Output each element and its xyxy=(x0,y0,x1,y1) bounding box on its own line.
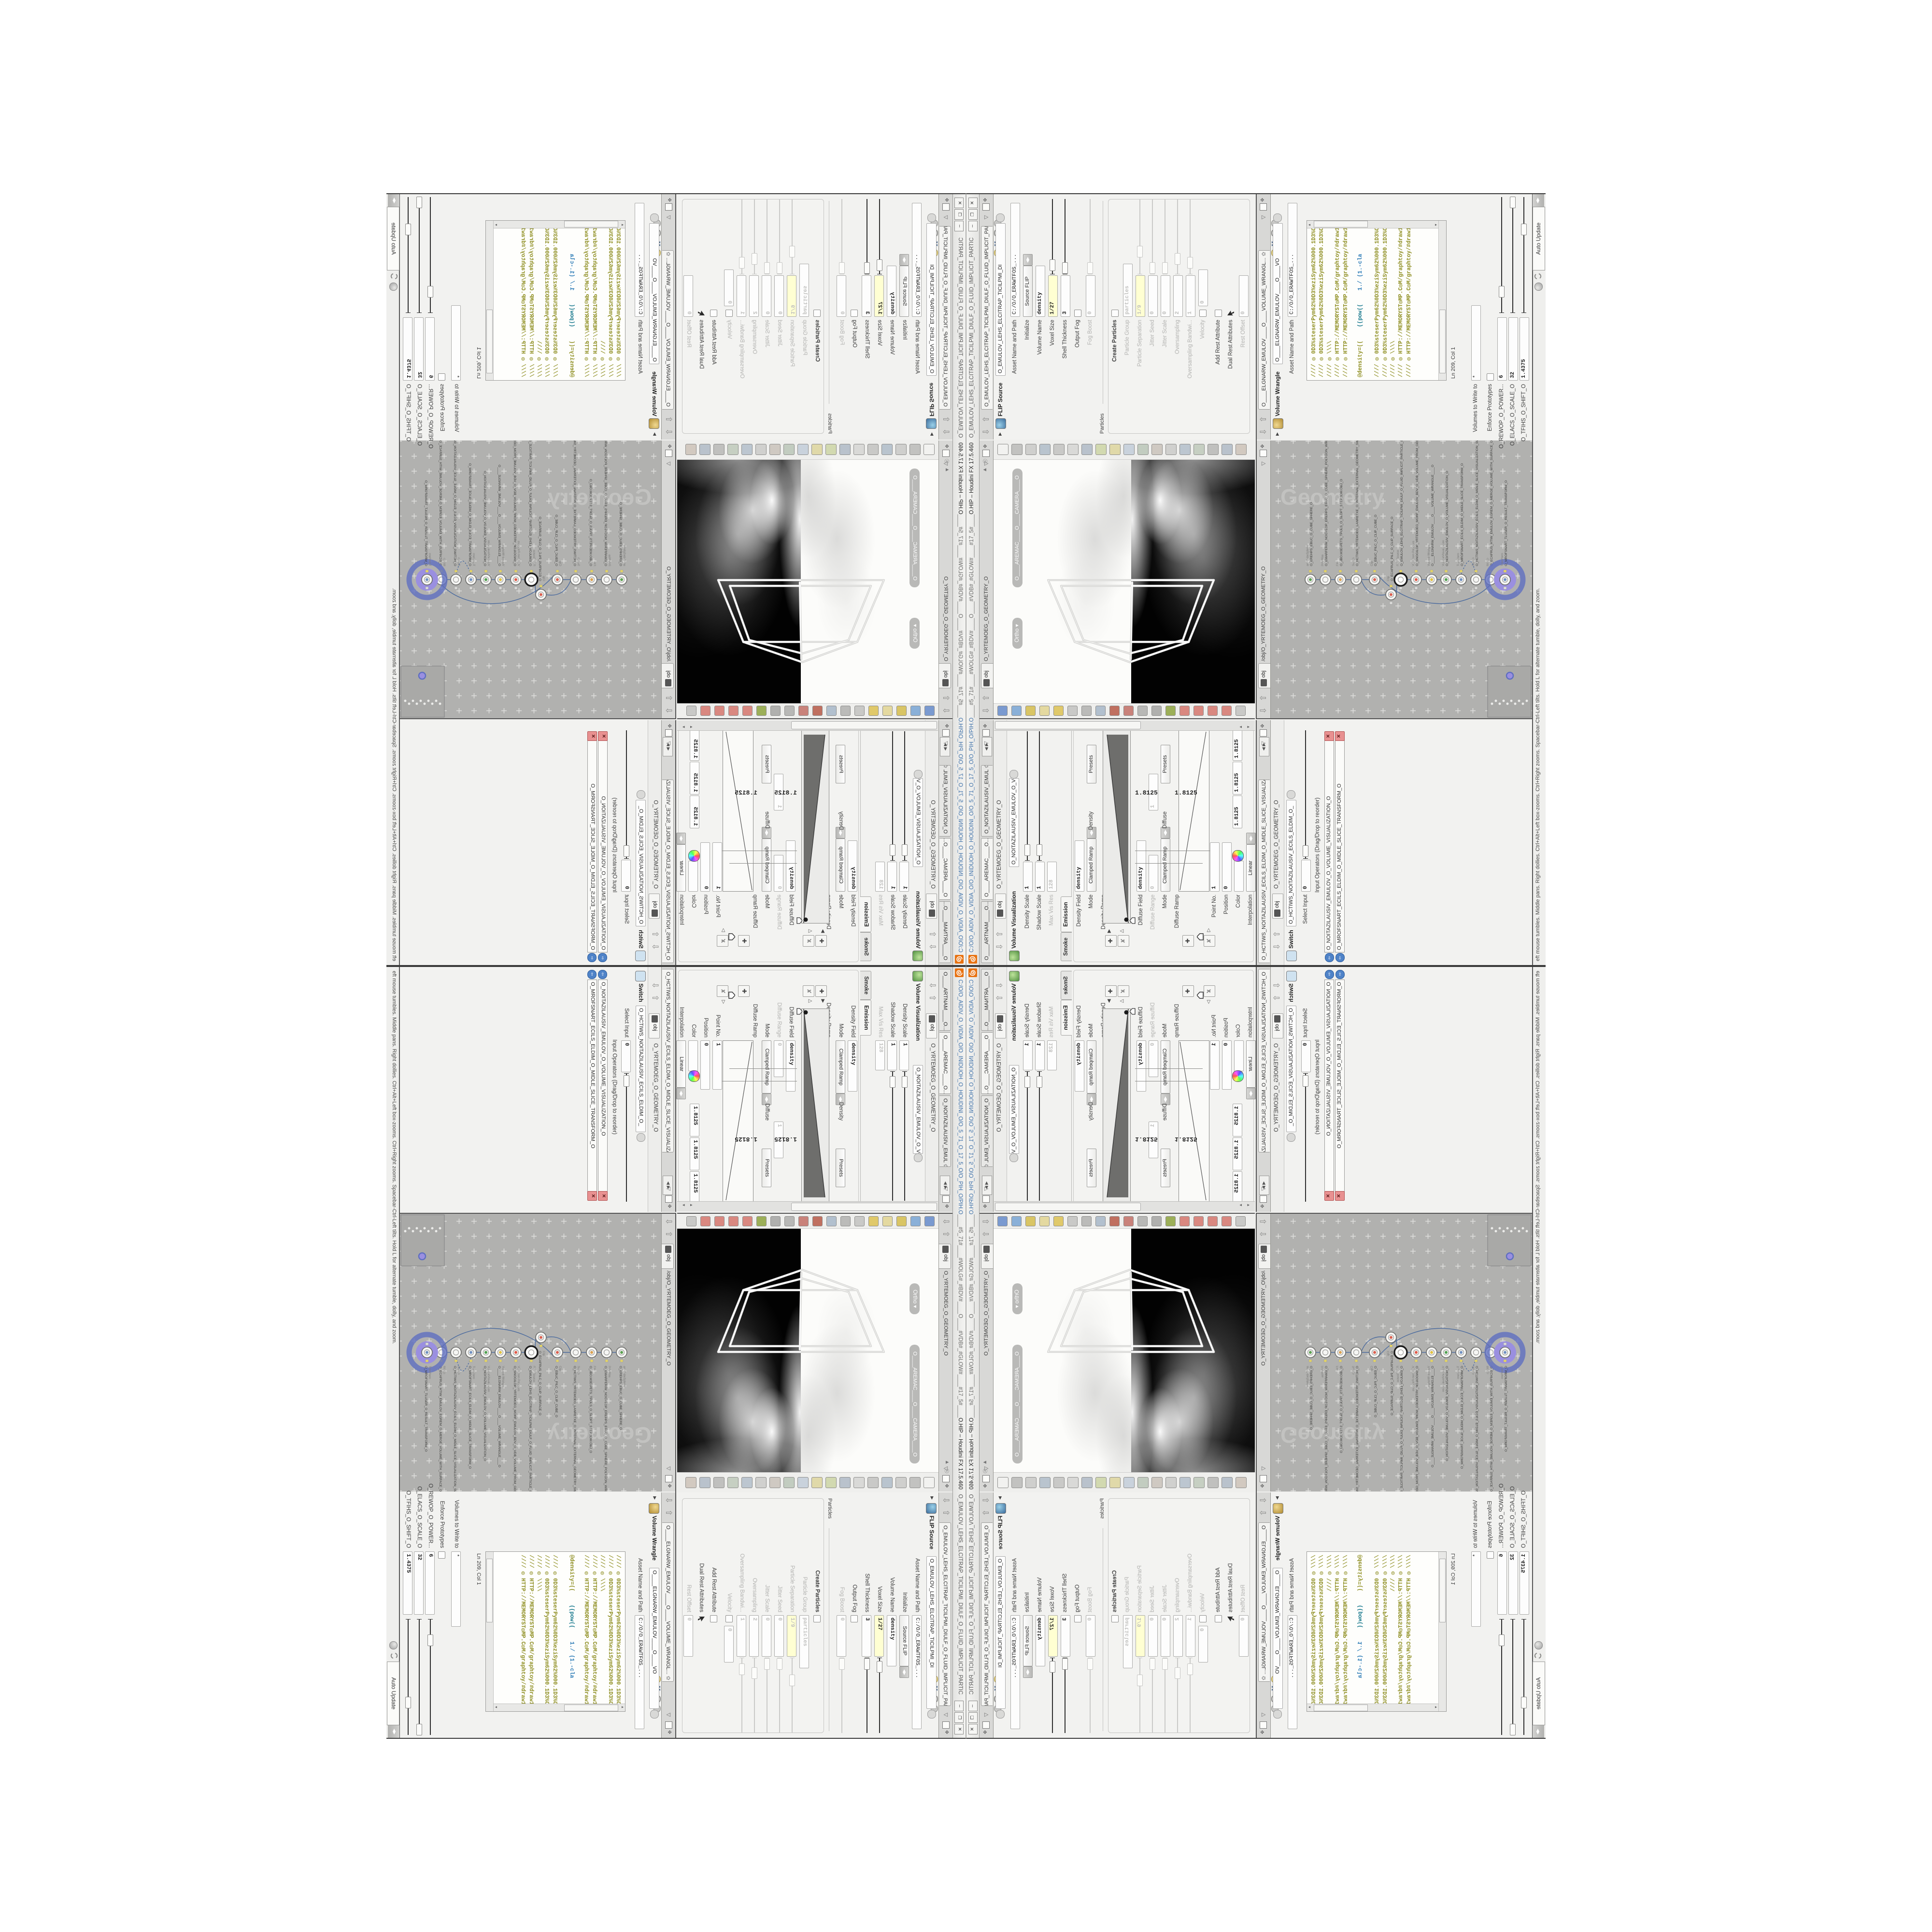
svg-text:Transform: Transform xyxy=(472,1366,475,1379)
svg-text:Switch: Switch xyxy=(1352,1366,1355,1375)
svg-text:an_CubeSphere: an_CubeSphere xyxy=(1307,1366,1309,1387)
svg-text:VolumeVisualization: VolumeVisualization xyxy=(1442,540,1445,566)
svg-text:Clip: Clip xyxy=(1387,576,1390,581)
svg-text:O_SNOGILOP_YRTEMOEG_MORF_EMULO: O_SNOGILOP_YRTEMOEG_MORF_EMULOV_BDV_O_VD… xyxy=(1416,440,1419,566)
svg-text:Merge: Merge xyxy=(442,1366,445,1375)
svg-text:Merge: Merge xyxy=(1487,557,1490,566)
svg-text:Transform: Transform xyxy=(1457,553,1460,566)
svg-text:VDB from Polygons: VDB from Polygons xyxy=(517,1366,520,1391)
svg-text:O_JBO.M3D.PETS_TPOLS_O_SLOPT_S: O_JBO.M3D.PETS_TPOLS_O_SLOPT_STEP.3DM.OB… xyxy=(589,479,592,566)
svg-text:O_EMARFERIW_NOGYLOP_EREHPS_EBU: O_EMARFERIW_NOGYLOP_EREHPS_EBUC_O_CUBE_S… xyxy=(604,1366,607,1492)
svg-text:PolyWire: PolyWire xyxy=(608,1366,611,1378)
svg-text:O_EMULOV_LEHS_ELCITRAP_TICILPM: O_EMULOV_LEHS_ELCITRAP_TICILPMI_DIULF_O_… xyxy=(1400,440,1404,566)
svg-text:O_JBO.M3D.PETS_TPOLS_O_SLOPT_S: O_JBO.M3D.PETS_TPOLS_O_SLOPT_STEP.3DM.OB… xyxy=(1340,1366,1343,1453)
svg-text:Volume Wrangle: Volume Wrangle xyxy=(501,1366,504,1388)
svg-text:Clip: Clip xyxy=(558,1366,561,1371)
svg-text:PolyWire: PolyWire xyxy=(1321,1366,1324,1378)
svg-text:Transform: Transform xyxy=(472,553,475,566)
svg-text:O_EBUC_PILC_O_CLIP_CUBE_O: O_EBUC_PILC_O_CLIP_CUBE_O xyxy=(554,1366,558,1418)
svg-text:PolyWire: PolyWire xyxy=(608,554,611,566)
svg-text:O_EMULOV_LEHS_ELCITRAP_TICILPM: O_EMULOV_LEHS_ELCITRAP_TICILPMI_DIULF_O_… xyxy=(528,440,532,566)
svg-text:O____ELGNARW_EMULOV____O____VO: O____ELGNARW_EMULOV____O____VOLUME_WRANG… xyxy=(497,465,501,566)
svg-text:VDB from Polygons: VDB from Polygons xyxy=(517,541,520,566)
svg-text:O_NOITAZILAUSIV_EMULOV_O_VOLUM: O_NOITAZILAUSIV_EMULOV_O_VOLUME_VISUALIZ… xyxy=(1446,1366,1449,1461)
svg-text:Switch: Switch xyxy=(577,557,580,566)
svg-text:O____ELGNARW_EMULOV____O____VO: O____ELGNARW_EMULOV____O____VOLUME_WRANG… xyxy=(1431,465,1435,566)
svg-text:Volume Wrangle: Volume Wrangle xyxy=(1428,1366,1431,1388)
svg-text:FLIP Source: FLIP Source xyxy=(1397,1366,1400,1382)
svg-text:O_EREHPS_EBUC_O_CUBE_SPHERE_O: O_EREHPS_EBUC_O_CUBE_SPHERE_O xyxy=(1310,1366,1313,1430)
svg-text:O_JBO.M3D.PETS_TPOLS_O_SLOPT_S: O_JBO.M3D.PETS_TPOLS_O_SLOPT_STEP.3DM.OB… xyxy=(589,1366,592,1453)
svg-text:Volume Wrangle: Volume Wrangle xyxy=(501,544,504,566)
svg-text:Switch: Switch xyxy=(457,557,460,566)
svg-text:O_EMULOV_LEHS_ELCITRAP_TICILPM: O_EMULOV_LEHS_ELCITRAP_TICILPMI_DIULF_O_… xyxy=(528,1366,532,1492)
svg-text:VolumeVisualization: VolumeVisualization xyxy=(487,1366,490,1392)
svg-text:Geometry: Geometry xyxy=(548,484,652,510)
svg-text:Clip: Clip xyxy=(542,576,545,581)
svg-text:O_SNOGILOP_YRTEMOEG_MORF_EMULO: O_SNOGILOP_YRTEMOEG_MORF_EMULOV_BDV_O_VD… xyxy=(513,1366,516,1492)
svg-text:FLIP Source: FLIP Source xyxy=(1397,550,1400,566)
svg-text:O_HCTIWS_YRTEMOEG_LANRETXE_O_I: O_HCTIWS_YRTEMOEG_LANRETXE_O_INTERNAL_EX… xyxy=(573,1366,576,1492)
svg-text:O_JBO.M3D.PETS_TPOLS_O_SLOPT_S: O_JBO.M3D.PETS_TPOLS_O_SLOPT_STEP.3DM.OB… xyxy=(1340,479,1343,566)
svg-text:Transform: Transform xyxy=(1501,1366,1504,1379)
svg-text:O_EMARFERIW_NOGYLOP_EREHPS_EBU: O_EMARFERIW_NOGYLOP_EREHPS_EBUC_O_CUBE_S… xyxy=(604,440,607,566)
svg-text:Volume Wrangle: Volume Wrangle xyxy=(1428,544,1431,566)
svg-text:O_MROFSNART_ECILS_ELDIM_O_MIDL: O_MROFSNART_ECILS_ELDIM_O_MIDLE_SLICE_TR… xyxy=(1461,463,1464,566)
svg-text:O_EREHPS_EBUC_O_CUBE_SPHERE_O: O_EREHPS_EBUC_O_CUBE_SPHERE_O xyxy=(619,502,622,566)
svg-text:File: File xyxy=(593,1366,596,1371)
svg-text:O_HCTIWS_YRTEMOEG_LANRETXE_O_I: O_HCTIWS_YRTEMOEG_LANRETXE_O_INTERNAL_EX… xyxy=(573,440,576,566)
svg-text:FLIP Source: FLIP Source xyxy=(532,1366,535,1382)
svg-text:Switch: Switch xyxy=(1352,557,1355,566)
svg-text:VDB from Polygons: VDB from Polygons xyxy=(1412,541,1415,566)
svg-text:O_HCTIWS_YRTEMOEG_LANRETXE_O_I: O_HCTIWS_YRTEMOEG_LANRETXE_O_INTERNAL_EX… xyxy=(1356,1366,1359,1492)
svg-text:O_SNOGILOP_YRTEMOEG_MORF_EMULO: O_SNOGILOP_YRTEMOEG_MORF_EMULOV_BDV_O_VD… xyxy=(513,440,516,566)
svg-text:an_CubeSphere: an_CubeSphere xyxy=(623,1366,625,1387)
svg-text:O_EMARFERIW_NOGYLOP_EREHPS_EBU: O_EMARFERIW_NOGYLOP_EREHPS_EBUC_O_CUBE_S… xyxy=(1325,440,1328,566)
svg-text:File: File xyxy=(1336,1366,1339,1371)
svg-text:an_CubeSphere: an_CubeSphere xyxy=(623,545,625,566)
svg-text:PolyWire: PolyWire xyxy=(1321,554,1324,566)
svg-text:O____ELGNARW_EMULOV____O____VO: O____ELGNARW_EMULOV____O____VOLUME_WRANG… xyxy=(497,1366,501,1467)
svg-text:O_HCTIWS_YRTEMOEG_LANRETXE_O_I: O_HCTIWS_YRTEMOEG_LANRETXE_O_INTERNAL_EX… xyxy=(1356,440,1359,566)
svg-text:O_MROFSNART_ECILS_ELDIM_O_MIDL: O_MROFSNART_ECILS_ELDIM_O_MIDLE_SLICE_TR… xyxy=(468,463,471,566)
svg-text:VDB from Polygons: VDB from Polygons xyxy=(1412,1366,1415,1391)
svg-text:O_MROFSNART_TLUSER_O_RESULT_TR: O_MROFSNART_TLUSER_O_RESULT_TRANSFORM_O xyxy=(1505,480,1508,566)
svg-text:O_EREHPS_EBUC_O_CUBE_SPHERE_O: O_EREHPS_EBUC_O_CUBE_SPHERE_O xyxy=(619,1366,622,1430)
svg-text:O_ECAFRUS_PILC_O_CLIP_SURFACE_: O_ECAFRUS_PILC_O_CLIP_SURFACE_O xyxy=(1391,517,1394,581)
svg-text:Switch: Switch xyxy=(577,1366,580,1375)
svg-text:Merge: Merge xyxy=(442,557,445,566)
svg-text:Transform: Transform xyxy=(428,1366,431,1379)
svg-text:O_MROFSNART_ECILS_ELDIM_O_MIDL: O_MROFSNART_ECILS_ELDIM_O_MIDLE_SLICE_TR… xyxy=(1461,1366,1464,1469)
svg-text:VolumeVisualization: VolumeVisualization xyxy=(1442,1366,1445,1392)
svg-text:Geometry: Geometry xyxy=(548,1422,652,1448)
svg-text:Switch: Switch xyxy=(1472,1366,1475,1375)
svg-text:Clip: Clip xyxy=(1371,1366,1374,1371)
svg-text:File: File xyxy=(593,561,596,566)
svg-text:O_EREHPS_EBUC_O_CUBE_SPHERE_O: O_EREHPS_EBUC_O_CUBE_SPHERE_O xyxy=(1310,502,1313,566)
svg-text:O_NOITAZILAUSIV_EMULOV_O_VOLUM: O_NOITAZILAUSIV_EMULOV_O_VOLUME_VISUALIZ… xyxy=(1446,471,1449,566)
svg-text:O_EBUC_PILC_O_CLIP_CUBE_O: O_EBUC_PILC_O_CLIP_CUBE_O xyxy=(1374,1366,1378,1418)
svg-text:Switch: Switch xyxy=(1472,557,1475,566)
svg-text:Transform: Transform xyxy=(1457,1366,1460,1379)
svg-text:O____ELGNARW_EMULOV____O____VO: O____ELGNARW_EMULOV____O____VOLUME_WRANG… xyxy=(1431,1366,1435,1467)
svg-text:Switch: Switch xyxy=(457,1366,460,1375)
svg-text:Clip: Clip xyxy=(1371,561,1374,566)
svg-text:O_MROFSNART_ECILS_ELDIM_O_MIDL: O_MROFSNART_ECILS_ELDIM_O_MIDLE_SLICE_TR… xyxy=(468,1366,471,1469)
svg-text:Transform: Transform xyxy=(428,553,431,566)
svg-text:O_EBUC_PILC_O_CLIP_CUBE_O: O_EBUC_PILC_O_CLIP_CUBE_O xyxy=(1374,514,1378,566)
svg-text:Geometry: Geometry xyxy=(1280,1422,1384,1448)
svg-text:O_NOITAZILAUSIV_EMULOV_O_VOLUM: O_NOITAZILAUSIV_EMULOV_O_VOLUME_VISUALIZ… xyxy=(483,471,486,566)
svg-text:Transform: Transform xyxy=(1501,553,1504,566)
svg-text:O_EMULOV_LEHS_ELCITRAP_TICILPM: O_EMULOV_LEHS_ELCITRAP_TICILPMI_DIULF_O_… xyxy=(1400,1366,1404,1492)
svg-text:O_ECAFRUS_PILC_O_CLIP_SURFACE_: O_ECAFRUS_PILC_O_CLIP_SURFACE_O xyxy=(1391,1351,1394,1415)
svg-text:O_EBUC_PILC_O_CLIP_CUBE_O: O_EBUC_PILC_O_CLIP_CUBE_O xyxy=(554,514,558,566)
svg-text:Geometry: Geometry xyxy=(1280,484,1384,510)
svg-text:O_SNOGILOP_YRTEMOEG_MORF_EMULO: O_SNOGILOP_YRTEMOEG_MORF_EMULOV_BDV_O_VD… xyxy=(1416,1366,1419,1492)
svg-text:Clip: Clip xyxy=(542,1351,545,1356)
svg-text:Clip: Clip xyxy=(1387,1351,1390,1356)
svg-text:O_MROFSNART_TLUSER_O_RESULT_TR: O_MROFSNART_TLUSER_O_RESULT_TRANSFORM_O xyxy=(1505,1366,1508,1452)
svg-text:O_EMARFERIW_NOGYLOP_EREHPS_EBU: O_EMARFERIW_NOGYLOP_EREHPS_EBUC_O_CUBE_S… xyxy=(1325,1366,1328,1492)
svg-text:an_CubeSphere: an_CubeSphere xyxy=(1307,545,1309,566)
svg-text:VolumeVisualization: VolumeVisualization xyxy=(487,540,490,566)
svg-text:O_NOITAZILAUSIV_EMULOV_O_VOLUM: O_NOITAZILAUSIV_EMULOV_O_VOLUME_VISUALIZ… xyxy=(483,1366,486,1461)
svg-text:O_ECAFRUS_PILC_O_CLIP_SURFACE_: O_ECAFRUS_PILC_O_CLIP_SURFACE_O xyxy=(538,1351,541,1415)
svg-text:Clip: Clip xyxy=(558,561,561,566)
svg-text:O_MROFSNART_TLUSER_O_RESULT_TR: O_MROFSNART_TLUSER_O_RESULT_TRANSFORM_O xyxy=(424,1366,427,1452)
svg-text:O_ECAFRUS_PILC_O_CLIP_SURFACE_: O_ECAFRUS_PILC_O_CLIP_SURFACE_O xyxy=(538,517,541,581)
svg-text:Merge: Merge xyxy=(1487,1366,1490,1375)
svg-text:O_MROFSNART_TLUSER_O_RESULT_TR: O_MROFSNART_TLUSER_O_RESULT_TRANSFORM_O xyxy=(424,480,427,566)
svg-text:FLIP Source: FLIP Source xyxy=(532,550,535,566)
svg-text:File: File xyxy=(1336,561,1339,566)
